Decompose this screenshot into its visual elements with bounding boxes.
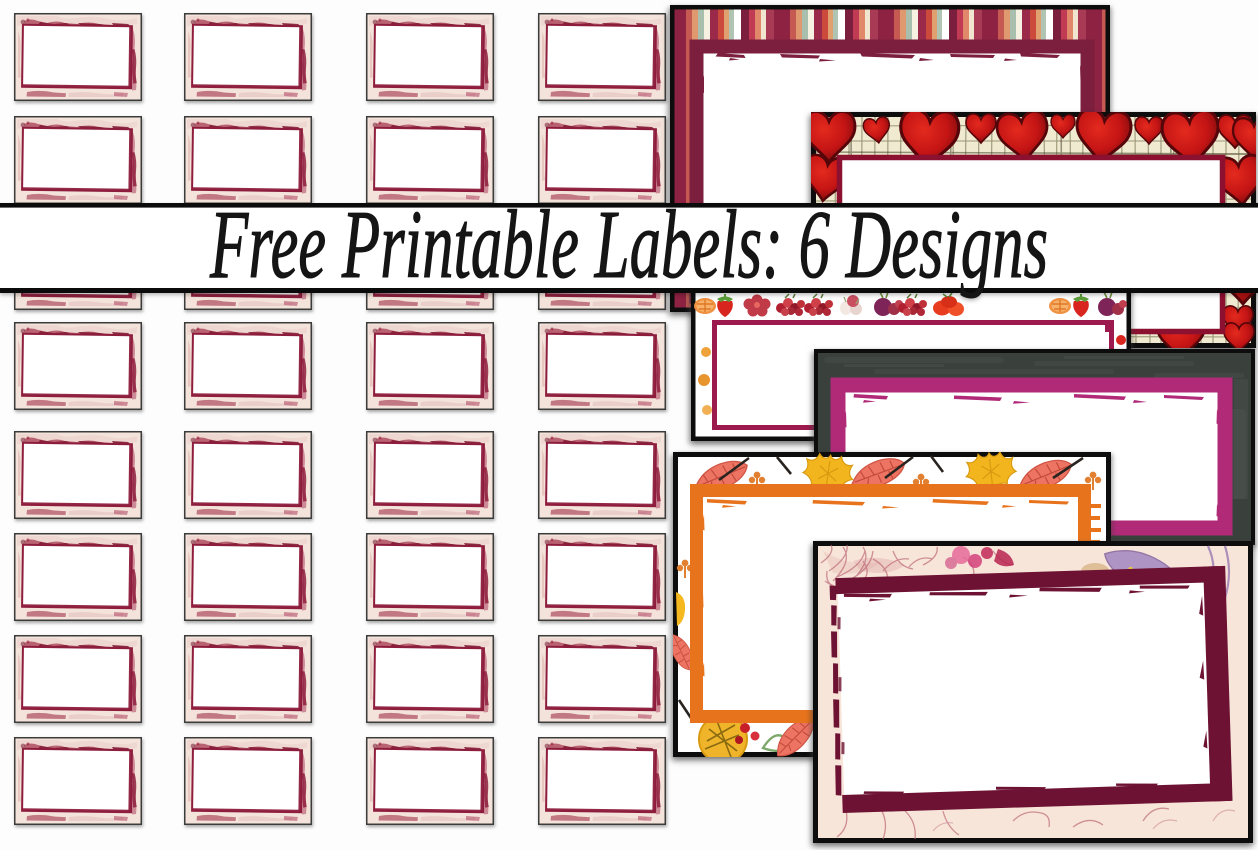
- svg-text:Free Printable Labels: 6 Desig: Free Printable Labels: 6 Designs: [209, 195, 1048, 298]
